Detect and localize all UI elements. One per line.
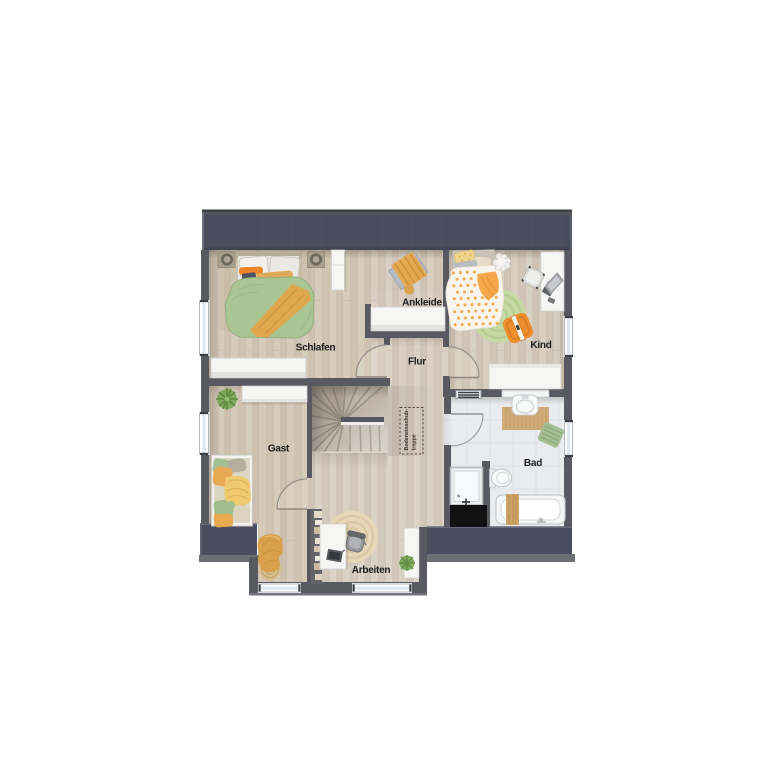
svg-text:Arbeiten: Arbeiten (352, 565, 391, 576)
svg-text:Kind: Kind (530, 340, 551, 351)
svg-text:treppe: treppe (411, 434, 417, 450)
svg-text:Ankleide: Ankleide (402, 298, 442, 309)
svg-text:Bodeneinschub-: Bodeneinschub- (404, 409, 410, 451)
svg-text:Gast: Gast (268, 444, 290, 455)
svg-text:Bad: Bad (524, 458, 542, 469)
svg-text:Schlafen: Schlafen (296, 343, 336, 354)
svg-text:Flur: Flur (408, 357, 426, 368)
